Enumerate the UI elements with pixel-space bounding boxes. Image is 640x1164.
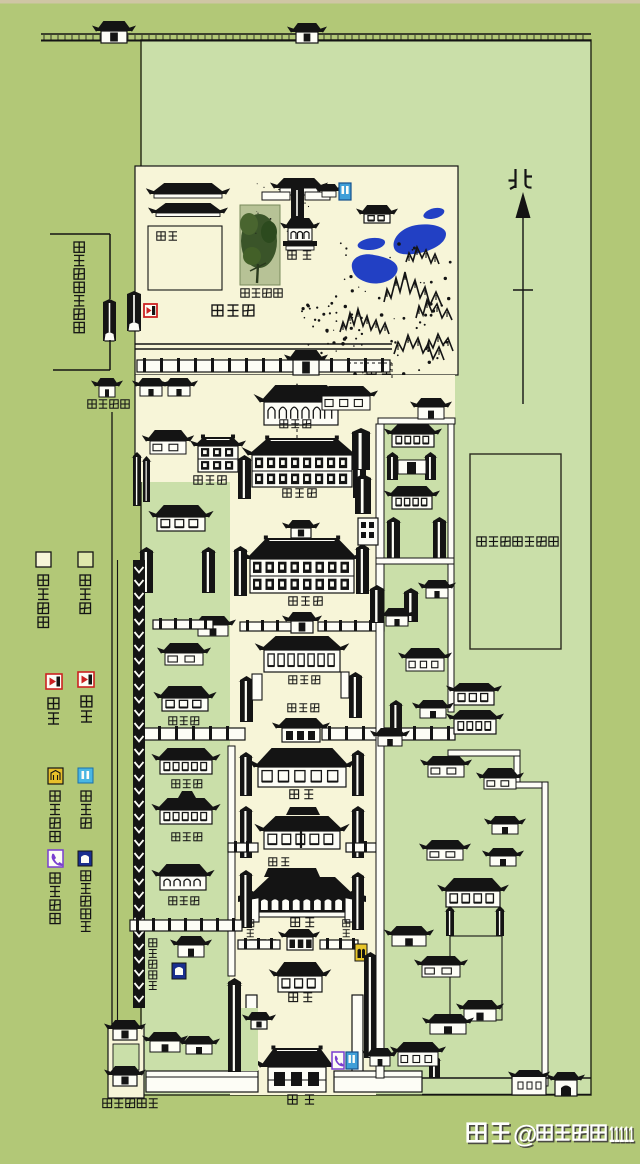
svg-text:@: @ [513, 1121, 537, 1149]
svg-text:11111: 11111 [609, 1122, 634, 1147]
